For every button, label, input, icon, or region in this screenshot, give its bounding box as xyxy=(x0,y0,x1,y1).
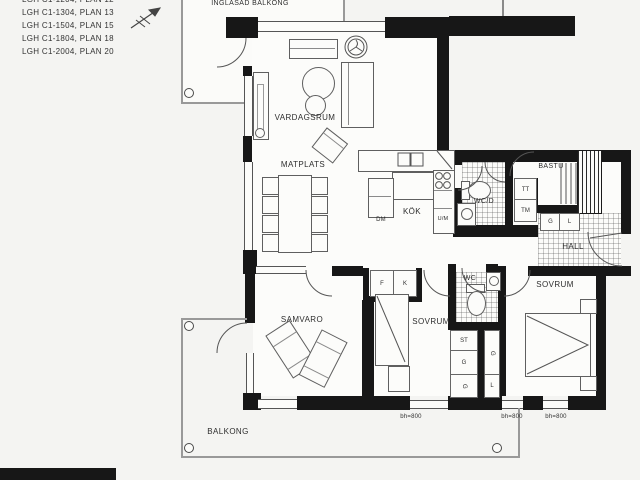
plan-line-overlay xyxy=(0,0,640,480)
fixture-blade xyxy=(350,47,356,51)
bed-fold-lines xyxy=(527,316,588,374)
door-arc xyxy=(217,38,246,67)
sink-bowl xyxy=(411,153,423,166)
hob-burner xyxy=(444,173,451,180)
shower-curtain-arc xyxy=(485,162,505,182)
north-arrow-icon xyxy=(131,8,160,28)
floor-plan-canvas: LGH C1-1204, PLAN 12 LGH C1-1304, PLAN 1… xyxy=(0,0,640,480)
door-arc xyxy=(217,323,247,353)
hob-burner xyxy=(444,182,451,189)
door-arc xyxy=(306,270,332,296)
door-arc xyxy=(510,152,534,176)
hob-burner xyxy=(436,182,443,189)
door-arc xyxy=(504,270,530,296)
fixture-blade xyxy=(356,40,358,47)
door-arc xyxy=(458,166,482,190)
sink-bowl xyxy=(398,153,410,166)
door-leaf xyxy=(590,233,622,238)
bed-diagonal xyxy=(377,296,405,362)
door-arc xyxy=(462,268,486,292)
hob-burner xyxy=(436,173,443,180)
counter-corner-line xyxy=(437,151,452,169)
fixture-blade xyxy=(356,47,362,51)
armchair xyxy=(312,128,347,163)
door-arc xyxy=(424,270,450,296)
